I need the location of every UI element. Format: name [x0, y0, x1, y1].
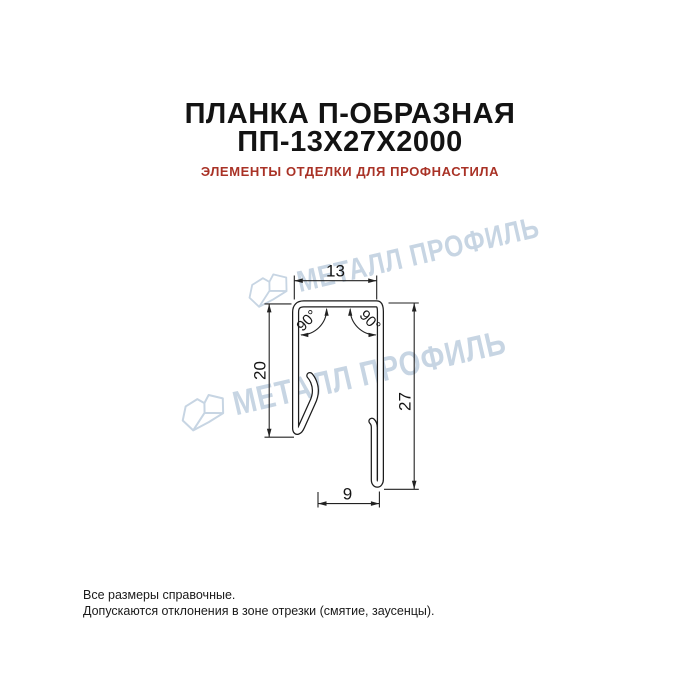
- arrow-down-icon: [267, 429, 272, 438]
- arrow-up-icon: [412, 303, 417, 312]
- arrow-up-icon: [325, 308, 329, 316]
- footer-notes: Все размеры справочные. Допускаются откл…: [83, 588, 435, 619]
- footer-note-line1: Все размеры справочные.: [83, 588, 435, 604]
- arrow-right-icon: [368, 278, 377, 283]
- arrow-up-icon: [267, 304, 272, 313]
- dimension-label-left-height: 20: [251, 361, 270, 380]
- arrow-up-icon: [348, 308, 352, 316]
- dimension-label-top-width: 13: [326, 262, 345, 281]
- dimension-label-right-height: 27: [396, 392, 415, 411]
- dimension-label-bottom-width: 9: [343, 485, 352, 504]
- product-subtitle: ЭЛЕМЕНТЫ ОТДЕЛКИ ДЛЯ ПРОФНАСТИЛА: [0, 165, 700, 179]
- dimension-top-width: 13: [294, 262, 376, 300]
- dimension-bottom-width: 9: [318, 485, 379, 508]
- dimension-right-height: 27: [384, 303, 419, 489]
- dimension-left-height: 20: [251, 304, 295, 437]
- arrow-right-icon: [371, 501, 380, 506]
- product-drawing-card: МЕТАЛЛ ПРОФИЛЬ МЕТАЛЛ ПРОФИЛЬ ПЛАНКА П-О…: [0, 0, 700, 700]
- header: ПЛАНКА П-ОБРАЗНАЯ ПП-13Х27Х2000 ЭЛЕМЕНТЫ…: [0, 100, 700, 179]
- arrow-left-icon: [294, 278, 303, 283]
- arrow-left-icon: [318, 501, 327, 506]
- arrow-down-icon: [412, 481, 417, 490]
- product-title-line2: ПП-13Х27Х2000: [0, 128, 700, 156]
- footer-note-line2: Допускаются отклонения в зоне отрезки (с…: [83, 604, 435, 620]
- product-title-line1: ПЛАНКА П-ОБРАЗНАЯ: [0, 100, 700, 128]
